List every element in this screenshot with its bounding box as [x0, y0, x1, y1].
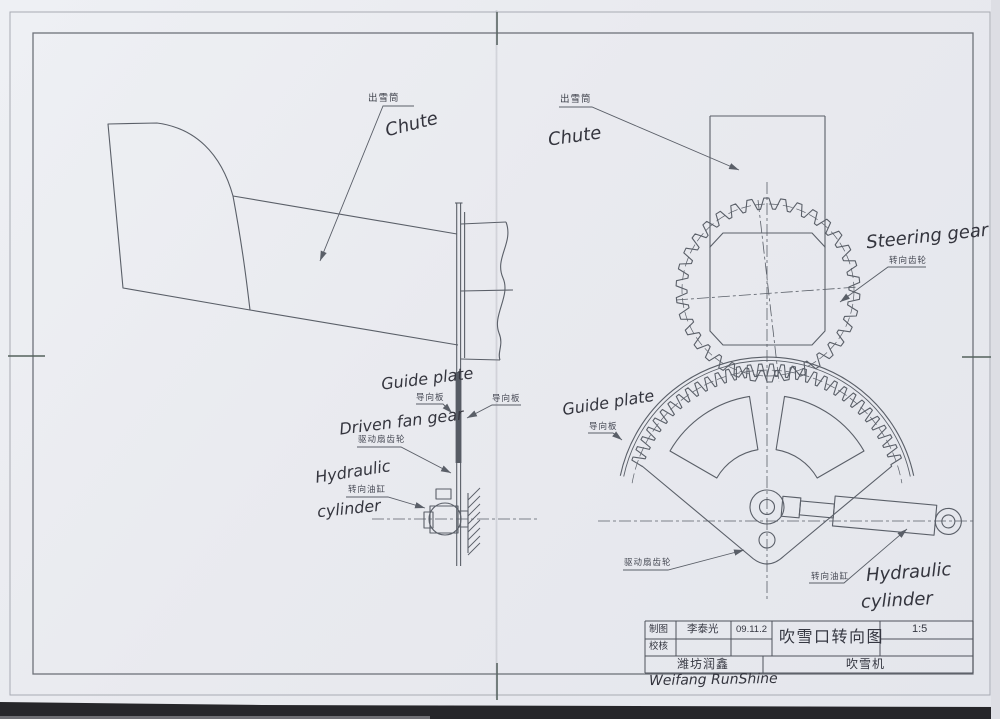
- steering-gear-bore-octagon: [710, 233, 825, 345]
- titleblock-scale: 1:5: [912, 624, 927, 635]
- hydraulic-cylinder: [781, 491, 963, 537]
- label-driven-gear-cn-right: 驱动扇齿轮: [624, 558, 672, 567]
- cylinder-joint-block: [430, 506, 458, 533]
- titleblock-company-hand: Weifang RunShine: [649, 672, 778, 688]
- titleblock-drawing-title: 吹雪口转向图: [779, 630, 884, 646]
- scanned-drawing-sheet: { "colors": { "paper": "#e9eaef", "line"…: [0, 0, 1000, 719]
- label-hydraulic-hand2-right: cylinder: [861, 590, 934, 612]
- label-driven-gear-cn-left: 驱动扇齿轮: [358, 435, 406, 444]
- titleblock-company: 潍坊润鑫: [677, 658, 729, 670]
- label-guide-plate-cn-left2: 导向板: [492, 394, 521, 403]
- label-steering-gear-cn: 转向齿轮: [889, 256, 927, 265]
- label-chute-cn-right: 出雪筒: [560, 95, 592, 105]
- paper-fold-crease: [495, 10, 498, 698]
- titleblock-drawn-by: 李泰光: [687, 624, 719, 635]
- right-view: [598, 116, 976, 600]
- break-line: [497, 222, 508, 360]
- sector-window-right: [776, 396, 864, 478]
- titleblock-date: 09.11.2: [736, 625, 767, 635]
- drawing-linework: [0, 0, 1000, 719]
- sheet-outline: [10, 12, 990, 695]
- sector-window-left: [670, 396, 758, 478]
- label-chute-cn-left: 出雪筒: [368, 94, 400, 104]
- cylinder-eye-outer: [934, 507, 962, 535]
- cylinder-eye-bore: [941, 514, 955, 528]
- label-hydraulic-cn-left: 转向油缸: [348, 485, 386, 494]
- leader-steering-gear: [840, 267, 926, 302]
- centering-marks: [8, 12, 997, 700]
- hatching: [468, 488, 480, 555]
- housing-top: [461, 222, 506, 224]
- leader-guide-plate-left2: [467, 405, 521, 418]
- label-hydraulic-cn-right: 转向油缸: [811, 572, 849, 581]
- titleblock-drawn-label: 制图: [649, 625, 668, 635]
- cylinder-rod: [799, 501, 834, 518]
- leader-guide-plate-right: [588, 433, 622, 440]
- paper-right-edge: [991, 0, 1000, 719]
- chute-cap-side: [108, 123, 250, 310]
- label-guide-plate-cn-left: 导向板: [416, 393, 445, 402]
- titleblock-checked-label: 校核: [649, 642, 668, 652]
- duct-top-edge: [233, 196, 457, 234]
- cylinder-cap: [436, 489, 451, 499]
- left-view: [108, 123, 538, 566]
- titleblock-product: 吹雪机: [846, 658, 885, 670]
- duct-bottom-edge: [250, 310, 458, 345]
- label-guide-plate-cn-right: 导向板: [589, 422, 618, 431]
